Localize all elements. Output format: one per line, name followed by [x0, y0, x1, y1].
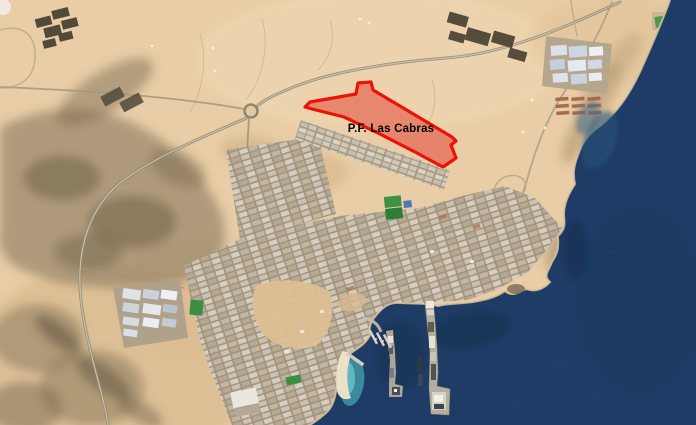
- industrial-estate-southwest: [113, 280, 188, 348]
- blue-building: [403, 200, 412, 208]
- area-label: P.F. Las Cabras: [348, 123, 435, 135]
- roundabout: [245, 105, 258, 118]
- satellite-map: P.F. Las Cabras: [0, 0, 696, 425]
- headland: [507, 284, 525, 294]
- satellite-map-canvas: P.F. Las Cabras: [0, 0, 696, 425]
